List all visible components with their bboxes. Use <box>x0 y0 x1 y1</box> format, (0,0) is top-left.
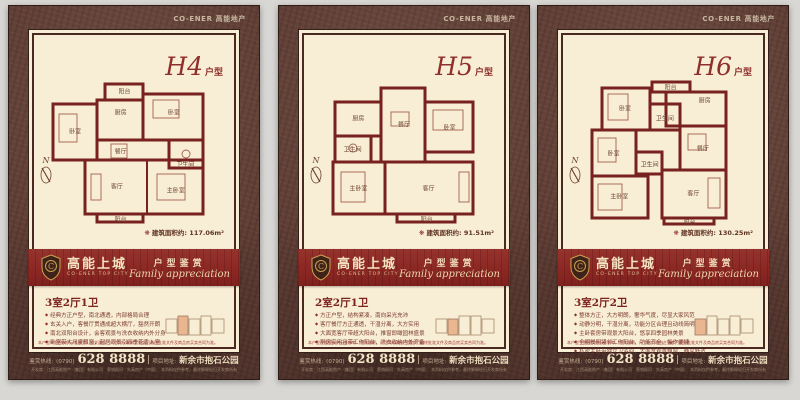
room-label: 阳台 <box>118 87 130 96</box>
project-address: 新余市抱石公园 <box>708 354 768 366</box>
north-indicator: N <box>568 156 582 189</box>
fine-print: 开发商：江西高能地产（集团）有限公司 营销顾问：先高房产（中国） 本资料仅供参考… <box>538 367 788 373</box>
feature-item: 动静分明，干湿分离，功能分区合理且动线简明 <box>574 321 708 330</box>
brand-name-cn: 高能上城 <box>67 258 129 272</box>
hotline-label: 鉴赏热线: <box>29 357 53 365</box>
hotline-prefix: (0790) <box>326 359 344 365</box>
room-label: 主卧室 <box>167 186 185 195</box>
tagline-cn: 户型鉴赏 <box>658 256 759 269</box>
area-note: ❋建筑面积约: 130.25m² <box>673 227 753 237</box>
room-label: 主卧室 <box>349 183 367 192</box>
fine-print: 开发商：江西高能地产（集团）有限公司 营销顾问：先高房产（中国） 本资料仅供参考… <box>279 367 529 373</box>
panel-body-h5: H5户型 N <box>298 29 510 353</box>
feature-item: 整体方正，大方明朗，奢华气度，尽显大家风范 <box>574 312 708 321</box>
layout-title: 3室2厅1卫 <box>45 295 98 310</box>
svg-text:C: C <box>577 262 583 271</box>
panel-body-h4: H4户型 N <box>28 29 240 353</box>
contact-line: 鉴赏热线: (0790) 628 8888 项目地址: 新余市抱石公园 <box>279 353 529 366</box>
layout-title: 2室2厅1卫 <box>315 295 368 310</box>
north-label: N <box>39 156 53 165</box>
plan-code-suffix: 户型 <box>205 68 223 78</box>
address-label: 项目地址: <box>681 357 705 365</box>
project-address: 新余市抱石公园 <box>179 354 239 366</box>
poster-h4: CO-ENER 高能地产 H4户型 N <box>8 5 260 380</box>
room-label: 阳台 <box>421 214 433 223</box>
feature-bullets: 整体方正，大方明朗，奢华气度，尽显大家风范 动静分明，干湿分离，功能分区合理且动… <box>574 312 708 357</box>
room-label: 厨房 <box>115 108 127 117</box>
brand-banner: C 高能上城 CO-ENER TOP CITY 户型鉴赏 Family appr… <box>28 249 240 286</box>
north-indicator: N <box>309 156 323 189</box>
banner-tagline: 户型鉴赏 Family appreciation <box>658 256 759 280</box>
floor-plan-h5: 厨房 卫生间 餐厅 卧室 主卧室 客厅 阳台 <box>309 78 499 226</box>
poster-wall: CO-ENER 高能地产 H4户型 N <box>0 0 800 400</box>
plan-code: H6 <box>694 52 732 81</box>
plan-code-suffix: 户型 <box>734 68 752 78</box>
shield-logo-icon: C <box>40 254 62 281</box>
room-label: 阳台 <box>115 214 127 223</box>
disclaimer-text: 本户型平面图仅供示意参考，相关面积、尺寸均以政府主管部门最终批准文件及商品房买卖… <box>567 340 759 346</box>
hotline-label: 鉴赏热线: <box>558 357 582 365</box>
area-value: 117.06m² <box>189 229 224 237</box>
feature-item: 私密主卧带独立卫浴间，大面宽观景飘窗，静享舒适 <box>574 348 708 357</box>
banner-brand: C 高能上城 CO-ENER TOP CITY <box>40 254 129 281</box>
plan-title: H4户型 <box>165 52 223 81</box>
room-label: 卧室 <box>69 127 81 136</box>
floor-plan-drawing <box>309 78 499 226</box>
area-mark-icon: ❋ <box>144 229 149 237</box>
plan-code-suffix: 户型 <box>475 68 493 78</box>
room-label: 餐厅 <box>398 119 410 128</box>
floor-plan-h6: 卧室 阳台 厨房 卫生间 餐厅 卧室 卫生间 客厅 主卧室 阳台 <box>568 78 758 226</box>
feature-item: 南北双阳台设计，会客观景与洗衣收纳内外分身 <box>45 330 179 339</box>
area-label: 建筑面积约: <box>681 229 716 237</box>
phone-number: 628 8888 <box>77 353 145 366</box>
room-label: 餐厅 <box>115 146 127 155</box>
brand-banner: C 高能上城 CO-ENER TOP CITY 户型鉴赏 Family appr… <box>557 249 769 286</box>
north-label: N <box>309 156 323 165</box>
hotline-label: 鉴赏热线: <box>299 357 323 365</box>
disclaimer-text: 本户型平面图仅供示意参考，相关面积、尺寸均以政府主管部门最终批准文件及商品房买卖… <box>38 340 230 346</box>
room-label: 卫生间 <box>344 145 362 154</box>
area-mark-icon: ❋ <box>673 229 678 237</box>
floor-plan-drawing <box>568 78 758 226</box>
poster-h6: CO-ENER 高能地产 H6户型 N <box>537 5 789 380</box>
site-plan-key <box>165 312 227 340</box>
poster-footer: 鉴赏热线: (0790) 628 8888 项目地址: 新余市抱石公园 开发商：… <box>9 353 259 378</box>
tagline-en: Family appreciation <box>129 269 230 280</box>
room-label: 阳台 <box>684 217 696 226</box>
site-plan-key <box>694 312 756 340</box>
feature-item: 方正户型，结构紧凑，南向采光充沛 <box>315 312 449 321</box>
address-label: 项目地址: <box>422 357 446 365</box>
banner-tagline: 户型鉴赏 Family appreciation <box>129 256 230 280</box>
room-label: 卫生间 <box>176 159 194 168</box>
coener-brand-logo: CO-ENER 高能地产 <box>443 14 516 24</box>
room-label: 卫生间 <box>641 159 659 168</box>
tagline-cn: 户型鉴赏 <box>129 256 230 269</box>
area-value: 91.51m² <box>464 229 494 237</box>
compass-icon <box>568 165 582 185</box>
brand-name-cn: 高能上城 <box>596 258 658 272</box>
banner-names: 高能上城 CO-ENER TOP CITY <box>337 258 399 277</box>
brand-name-en: CO-ENER TOP CITY <box>67 272 129 277</box>
brand-name-en: CO-ENER TOP CITY <box>337 272 399 277</box>
room-label: 主卧室 <box>610 192 628 201</box>
brand-name-en: CO-ENER TOP CITY <box>596 272 658 277</box>
room-label: 客厅 <box>423 183 435 192</box>
hotline-prefix: (0790) <box>56 359 74 365</box>
room-label: 卧室 <box>619 103 631 112</box>
floor-plan-drawing <box>39 78 229 226</box>
phone-number: 628 8888 <box>347 353 415 366</box>
contact-line: 鉴赏热线: (0790) 628 8888 项目地址: 新余市抱石公园 <box>9 353 259 366</box>
panel-body-h6: H6户型 N <box>557 29 769 353</box>
feature-item: 经典方正户型，南北通透，内部格局合理 <box>45 312 179 321</box>
svg-text:C: C <box>318 262 324 271</box>
footer-divider <box>418 355 419 364</box>
room-label: 卫生间 <box>656 113 674 122</box>
address-label: 项目地址: <box>152 357 176 365</box>
site-plan-key <box>435 312 497 340</box>
svg-text:C: C <box>48 262 54 271</box>
project-address: 新余市抱石公园 <box>449 354 509 366</box>
north-indicator: N <box>39 156 53 189</box>
hotline-prefix: (0790) <box>585 359 603 365</box>
feature-item: 主卧套房带观景大阳台，悠享四季园林美景 <box>574 330 708 339</box>
feature-item: 玄关入户，客餐厅贯通成超大横厅，豁然开朗 <box>45 321 179 330</box>
banner-names: 高能上城 CO-ENER TOP CITY <box>596 258 658 277</box>
area-note: ❋建筑面积约: 91.51m² <box>419 227 494 237</box>
feature-item: 客厅餐厅方正通透，干湿分离，大方实用 <box>315 321 449 330</box>
tagline-en: Family appreciation <box>658 269 759 280</box>
brand-name-cn: 高能上城 <box>337 258 399 272</box>
room-label: 客厅 <box>687 189 699 198</box>
plan-title: H5户型 <box>435 52 493 81</box>
fine-print: 开发商：江西高能地产（集团）有限公司 营销顾问：先高房产（中国） 本资料仅供参考… <box>9 367 259 373</box>
compass-icon <box>39 165 53 185</box>
poster-footer: 鉴赏热线: (0790) 628 8888 项目地址: 新余市抱石公园 开发商：… <box>279 353 529 378</box>
shield-logo-icon: C <box>310 254 332 281</box>
room-label: 阳台 <box>665 82 677 91</box>
plan-title: H6户型 <box>694 52 752 81</box>
banner-tagline: 户型鉴赏 Family appreciation <box>399 256 500 280</box>
room-label: 客厅 <box>111 182 123 191</box>
room-label: 卧室 <box>444 122 456 131</box>
area-mark-icon: ❋ <box>419 229 424 237</box>
coener-brand-logo: CO-ENER 高能地产 <box>702 14 775 24</box>
banner-brand: C 高能上城 CO-ENER TOP CITY <box>310 254 399 281</box>
banner-names: 高能上城 CO-ENER TOP CITY <box>67 258 129 277</box>
floor-plan-h4: 阳台 卧室 厨房 卧室 餐厅 卫生间 客厅 主卧室 阳台 <box>39 78 229 226</box>
disclaimer-text: 本户型平面图仅供示意参考，相关面积、尺寸均以政府主管部门最终批准文件及商品房买卖… <box>308 340 500 346</box>
shield-logo-icon: C <box>569 254 591 281</box>
tagline-en: Family appreciation <box>399 269 500 280</box>
feature-item: 大面宽客厅带超大阳台，推窗即瞰园林盛景 <box>315 330 449 339</box>
coener-brand-logo: CO-ENER 高能地产 <box>173 14 246 24</box>
compass-icon <box>309 165 323 185</box>
north-label: N <box>568 156 582 165</box>
banner-brand: C 高能上城 CO-ENER TOP CITY <box>569 254 658 281</box>
plan-code: H5 <box>435 52 473 81</box>
plan-code: H4 <box>165 52 203 81</box>
area-note: ❋建筑面积约: 117.06m² <box>144 227 224 237</box>
area-label: 建筑面积约: <box>426 229 461 237</box>
brand-banner: C 高能上城 CO-ENER TOP CITY 户型鉴赏 Family appr… <box>298 249 510 286</box>
room-label: 餐厅 <box>697 143 709 152</box>
room-label: 厨房 <box>699 96 711 105</box>
room-label: 卧室 <box>608 149 620 158</box>
footer-divider <box>148 355 149 364</box>
tagline-cn: 户型鉴赏 <box>399 256 500 269</box>
layout-title: 3室2厅2卫 <box>574 295 627 310</box>
area-value: 130.25m² <box>718 229 753 237</box>
area-label: 建筑面积约: <box>152 229 187 237</box>
poster-h5: CO-ENER 高能地产 H5户型 N <box>278 5 530 380</box>
room-label: 卧室 <box>168 108 180 117</box>
room-label: 厨房 <box>352 113 364 122</box>
